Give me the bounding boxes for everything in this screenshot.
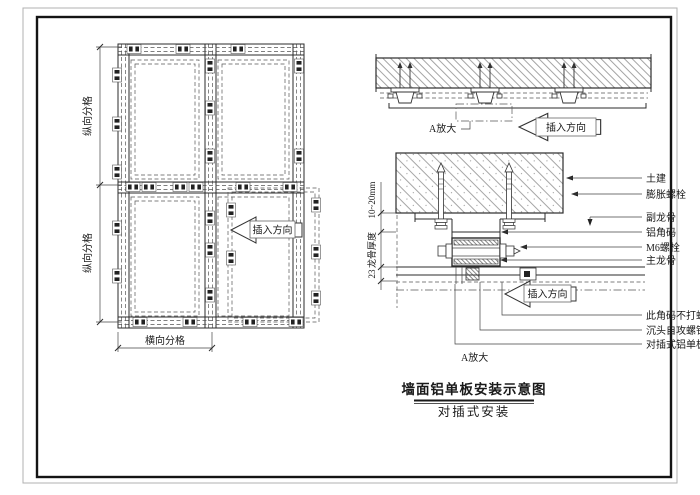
vertical-grid-label-top: 纵向分格 [81, 96, 94, 136]
title-block: 墙面铝单板安装示意图 对插式安装 [402, 381, 547, 419]
wall-slab-hatch [376, 58, 651, 88]
detail-a-section-view: 10~20mm 龙骨厚度 23 土建 膨胀螺栓 副龙骨 铝角码 M6螺栓 主龙骨… [366, 153, 700, 364]
label-main-keel: 主龙骨 [646, 254, 676, 267]
concrete-hatch [396, 153, 563, 213]
inserted-panel-outline [228, 188, 319, 322]
detail-a-callout-plan: A放大 [429, 122, 456, 135]
insert-direction-arrow-detail: 插入方向 [505, 281, 576, 307]
panel-elevation-view: 纵向分格 纵向分格 横向分格 插入方向 [81, 44, 321, 352]
insert-direction-label: 插入方向 [546, 121, 586, 134]
insert-direction-label: 插入方向 [253, 224, 293, 237]
label-civil: 土建 [646, 172, 666, 185]
dim-panel-label: 23 [367, 269, 377, 279]
detail-a-boundary [456, 104, 512, 121]
vertical-grid-label-bottom: 纵向分格 [81, 233, 94, 273]
label-secondary-keel: 副龙骨 [646, 211, 676, 224]
insert-direction-arrow-plan: 插入方向 [519, 113, 601, 140]
label-plug-panel: 对插式铝单板 [646, 338, 700, 351]
label-expansion-bolt: 膨胀螺栓 [646, 188, 686, 201]
horizontal-grid-label: 横向分格 [145, 334, 185, 347]
drawing-subtitle: 对插式安装 [438, 404, 511, 419]
horizontal-dimension: 横向分格 [115, 332, 215, 352]
drawing-canvas: 纵向分格 纵向分格 横向分格 插入方向 A放大 [0, 0, 700, 495]
label-bracket-no-screw: 此角码不打螺钉 [646, 309, 700, 322]
label-m6-bolt: M6螺栓 [646, 241, 680, 254]
detail-a-callout-section: A放大 [461, 351, 488, 364]
label-countersunk-screw: 沉头自攻螺钉固定 [646, 324, 700, 337]
drawing-title: 墙面铝单板安装示意图 [402, 381, 547, 397]
cad-sheet: 纵向分格 纵向分格 横向分格 插入方向 A放大 [0, 0, 700, 495]
insert-direction-arrow-elevation: 插入方向 [231, 217, 302, 243]
label-alu-bracket: 铝角码 [646, 227, 676, 239]
detail-dimensions: 10~20mm 龙骨厚度 23 [366, 182, 396, 290]
plan-section-view: A放大 插入方向 [376, 54, 651, 141]
dim-keel-thickness-label: 龙骨厚度 [366, 232, 377, 268]
dim-gap-label: 10~20mm [367, 182, 377, 219]
insert-direction-label: 插入方向 [528, 288, 568, 301]
main-keel-assembly [438, 232, 520, 266]
